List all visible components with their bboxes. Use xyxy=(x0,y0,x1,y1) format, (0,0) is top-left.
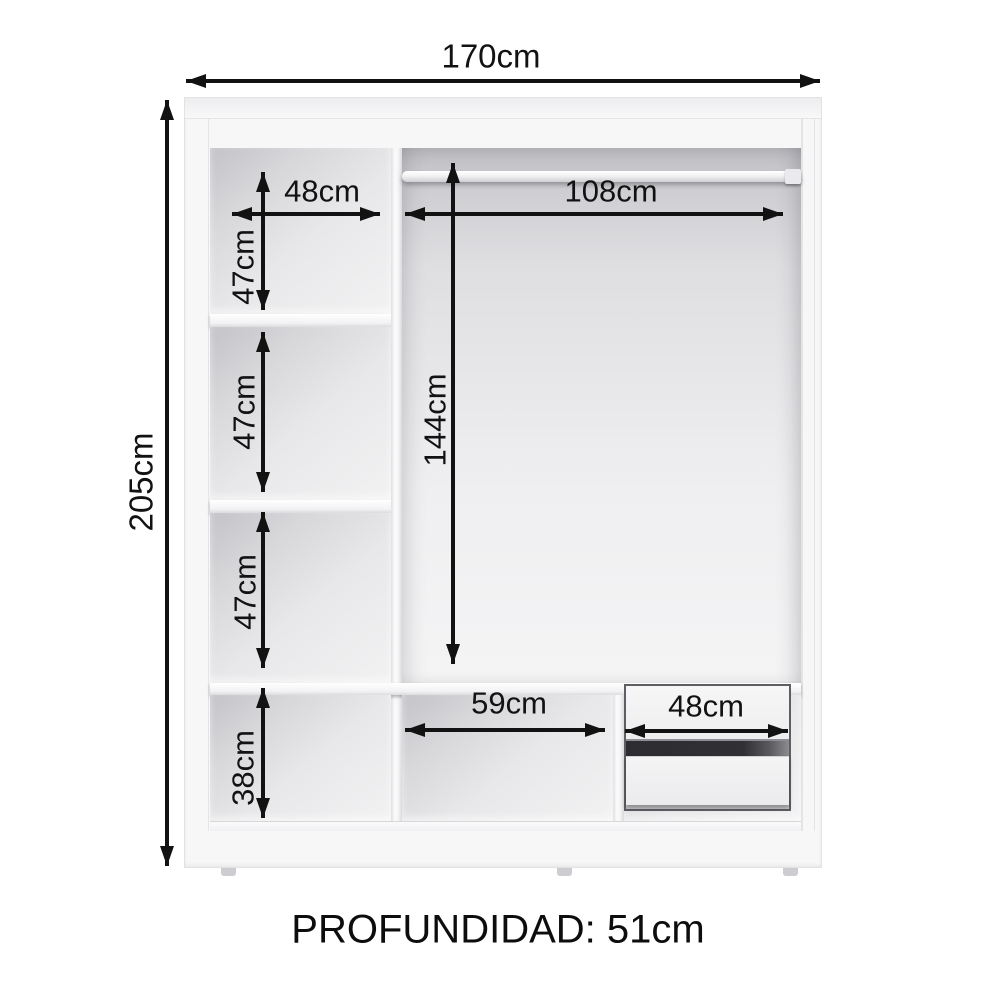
wardrobe-foot-right xyxy=(783,868,798,876)
hanging-height-label: 144cm xyxy=(420,373,451,466)
open-drawer-gap xyxy=(626,741,789,756)
hanging-width-arrow xyxy=(405,212,783,216)
left-compartment-3-height-label: 47cm xyxy=(230,554,261,630)
drawer-width-arrow xyxy=(625,729,788,733)
rod-end-bracket xyxy=(785,169,801,184)
wardrobe-dimension-diagram: 170cm 205cm 48cm 47cm 47cm 47cm 108cm 14… xyxy=(0,0,1000,1000)
left-compartment-1-height-label: 47cm xyxy=(228,229,259,305)
total-width-label: 170cm xyxy=(441,40,540,73)
shelf-2 xyxy=(210,500,391,513)
bottom-middle-width-label: 59cm xyxy=(471,688,547,719)
bottom-compartment-height-arrow xyxy=(261,688,265,818)
drawer-width-label: 48cm xyxy=(668,691,744,722)
total-height-label: 205cm xyxy=(125,432,158,531)
wardrobe-foot-left xyxy=(221,868,236,876)
left-column-width-arrow xyxy=(232,212,380,216)
shelf-1 xyxy=(210,314,391,327)
left-compartment-3-height-arrow xyxy=(261,512,265,668)
wardrobe-top-panel xyxy=(185,98,821,119)
left-compartment-2-height-label: 47cm xyxy=(229,374,260,450)
bottom-compartment-height-label: 38cm xyxy=(228,730,259,806)
base-front-strip xyxy=(210,821,801,831)
left-panel-edge xyxy=(208,118,209,831)
total-width-arrow xyxy=(186,79,820,83)
wardrobe-foot-center xyxy=(557,868,572,876)
depth-caption: PROFUNDIDAD: 51cm xyxy=(291,908,704,953)
left-compartment-2-height-arrow xyxy=(261,332,265,492)
center-divider-panel xyxy=(391,148,402,826)
right-door-track-line xyxy=(814,118,815,831)
bottom-middle-width-arrow xyxy=(405,728,605,732)
hanging-height-arrow xyxy=(451,163,455,664)
hanging-width-label: 108cm xyxy=(564,176,657,207)
bottom-divider-panel xyxy=(613,695,624,821)
hanging-section xyxy=(402,148,801,683)
left-compartment-1-height-arrow xyxy=(261,172,265,310)
left-column-width-label: 48cm xyxy=(284,176,360,207)
bottom-drawer-front xyxy=(626,756,789,805)
right-panel-edge xyxy=(801,118,803,831)
total-height-arrow xyxy=(165,100,169,866)
